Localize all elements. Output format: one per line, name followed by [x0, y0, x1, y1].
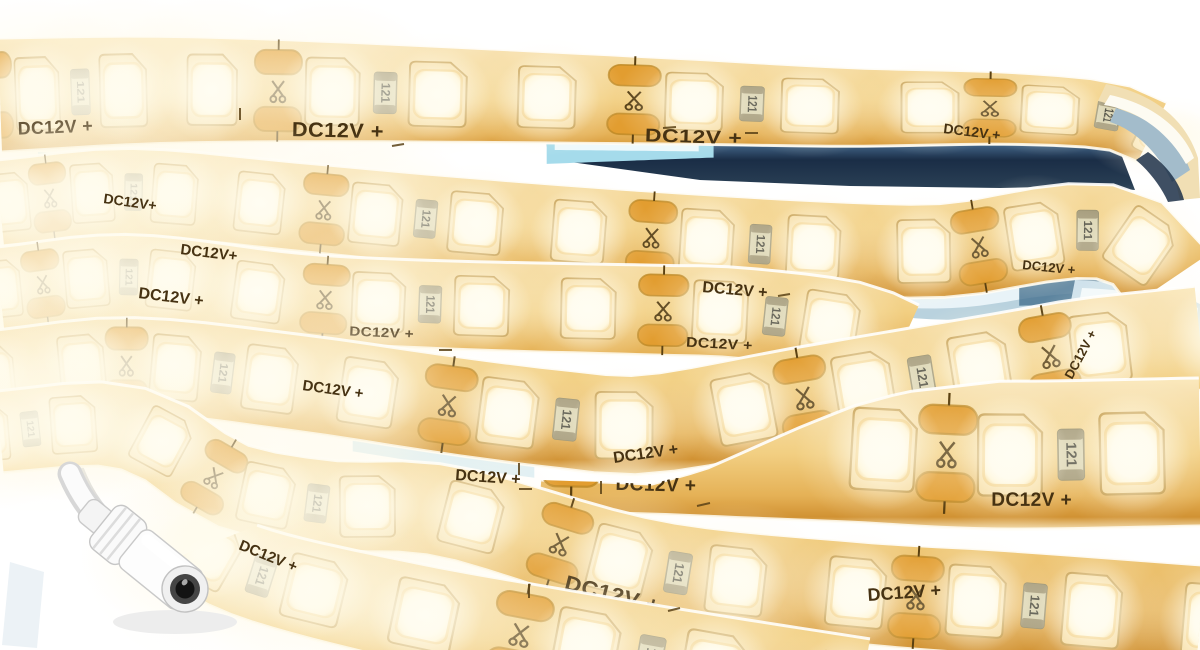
- svg-text:DC12V +: DC12V +: [991, 490, 1072, 511]
